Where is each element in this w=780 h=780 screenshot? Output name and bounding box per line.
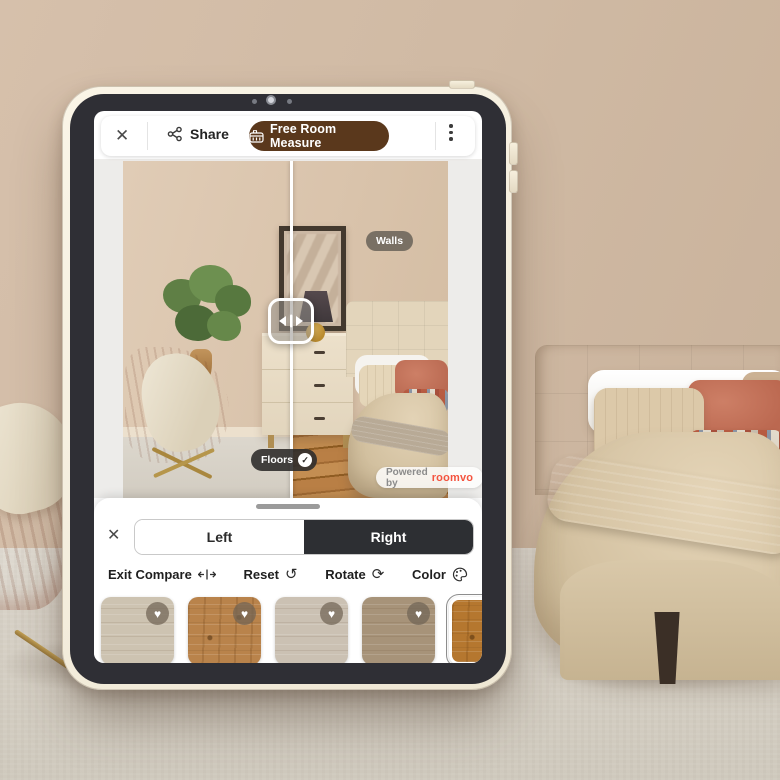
power-button (449, 80, 475, 89)
volume-up-button (509, 142, 518, 165)
app-screen: ✕ Share (94, 111, 482, 663)
tab-right[interactable]: Right (304, 520, 473, 554)
favorite-heart-icon[interactable]: ♥ (146, 602, 169, 625)
photo-dresser (262, 333, 353, 435)
close-panel-icon[interactable]: ✕ (107, 528, 120, 544)
flooring-swatch[interactable]: ♥ (362, 597, 435, 663)
roomvo-logo: roomvo (432, 472, 474, 484)
free-room-measure-button[interactable]: Free Room Measure (249, 121, 389, 151)
divider (147, 122, 148, 150)
flooring-swatch-selected[interactable] (449, 597, 482, 663)
flooring-swatch[interactable]: ♥ (275, 597, 348, 663)
room-visualizer-image: Walls Floors ✓ (123, 161, 448, 498)
rotate-icon: ⟳ (372, 567, 385, 582)
favorite-heart-icon[interactable]: ♥ (407, 602, 430, 625)
tab-left[interactable]: Left (135, 520, 304, 554)
kebab-menu-icon[interactable] (449, 124, 453, 141)
left-right-segmented-control: Left Right (134, 519, 474, 555)
front-camera (266, 95, 276, 105)
exit-compare-button[interactable]: Exit Compare (108, 567, 216, 582)
reset-icon: ↺ (285, 567, 298, 582)
share-icon (167, 126, 183, 142)
reset-button[interactable]: Reset ↺ (244, 567, 298, 582)
photo-dresser-leg (268, 435, 274, 448)
favorite-heart-icon[interactable]: ♥ (233, 602, 256, 625)
check-icon: ✓ (298, 453, 312, 467)
flooring-swatch[interactable]: ♥ (188, 597, 261, 663)
rotate-label: Rotate (325, 567, 365, 582)
compare-arrows-icon (198, 569, 216, 580)
marketing-scene: ✕ Share (0, 0, 780, 780)
exit-compare-label: Exit Compare (108, 567, 192, 582)
color-label: Color (412, 567, 446, 582)
split-arrows-icon (278, 314, 304, 328)
walls-tag-label: Walls (376, 235, 403, 247)
walls-tag[interactable]: Walls (366, 231, 413, 251)
palette-icon (452, 567, 468, 582)
free-room-measure-label: Free Room Measure (270, 122, 389, 150)
floors-tag[interactable]: Floors ✓ (251, 449, 317, 471)
divider (435, 122, 436, 150)
share-label: Share (190, 126, 229, 142)
reset-label: Reset (244, 567, 279, 582)
sensor-dot (252, 99, 257, 104)
photo-plant-foliage (207, 311, 241, 341)
share-button[interactable]: Share (167, 126, 229, 142)
color-button[interactable]: Color (412, 567, 468, 582)
bottom-sheet: ✕ Left Right Exit Compare (94, 498, 482, 663)
flooring-swatch[interactable]: ♥ (101, 597, 174, 663)
floors-tag-label: Floors (261, 454, 293, 466)
powered-by-label: Powered by (386, 467, 428, 489)
powered-by-watermark: Powered by roomvo (376, 467, 482, 488)
rotate-button[interactable]: Rotate ⟳ (325, 567, 384, 582)
tools-row: Exit Compare Reset ↺ (104, 561, 472, 587)
close-icon[interactable]: ✕ (115, 127, 129, 144)
tablet-device: ✕ Share (62, 86, 512, 690)
drag-handle[interactable] (256, 504, 320, 509)
favorite-heart-icon[interactable]: ♥ (320, 602, 343, 625)
compare-slider-handle[interactable] (268, 298, 314, 344)
sensor-dot (287, 99, 292, 104)
volume-down-button (509, 170, 518, 193)
top-app-bar: ✕ Share (101, 116, 475, 156)
flooring-swatch-row: ♥ ♥ ♥ ♥ (101, 597, 482, 663)
tape-measure-icon (249, 130, 264, 143)
